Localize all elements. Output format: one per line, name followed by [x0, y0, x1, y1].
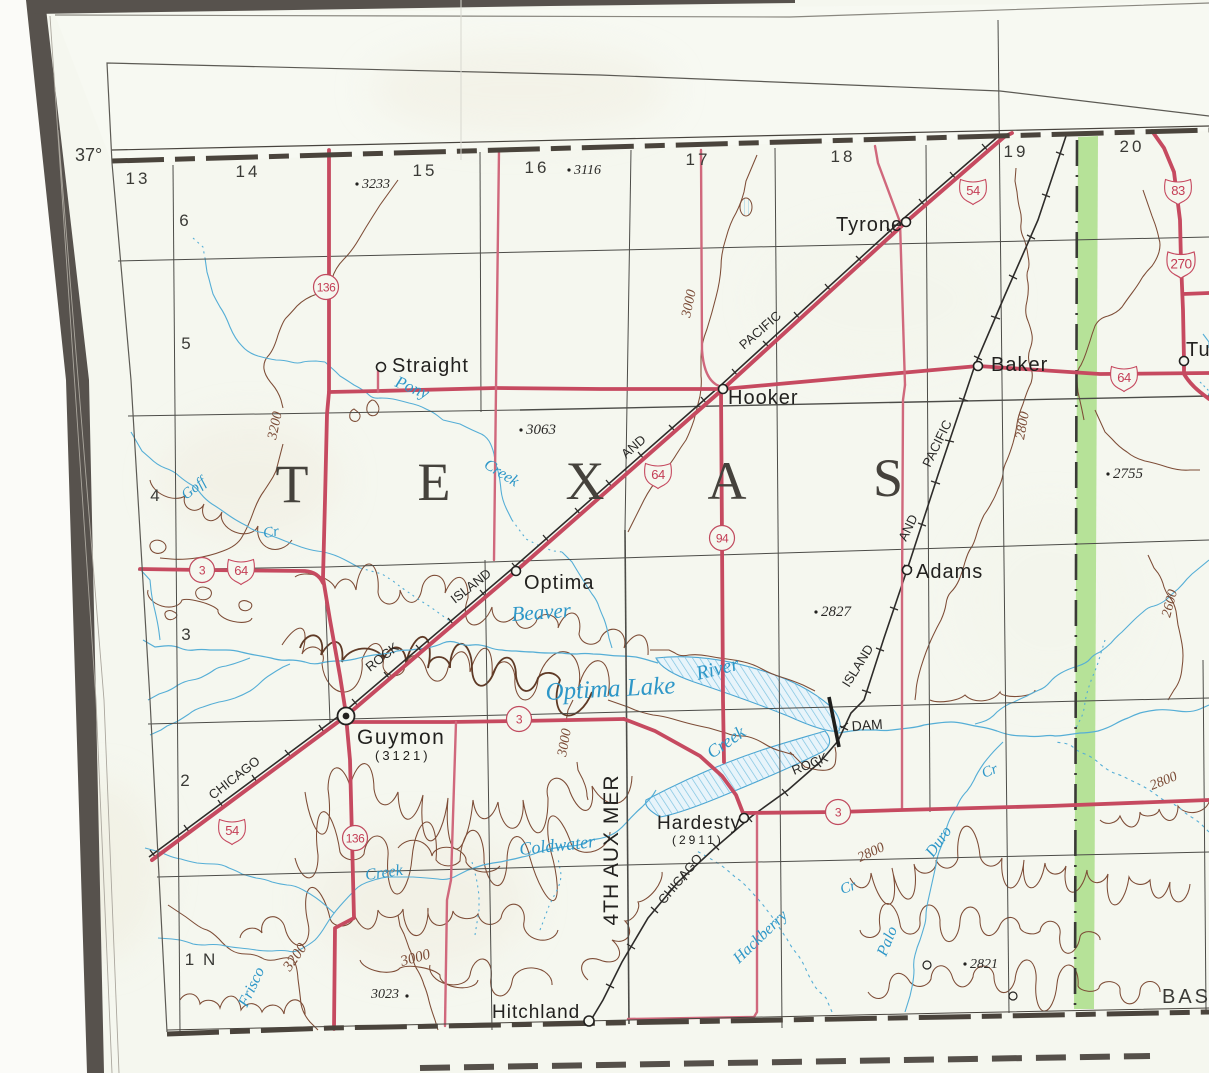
- svg-text:3: 3: [181, 625, 192, 644]
- svg-text:64: 64: [651, 467, 665, 482]
- svg-text:Hitchland: Hitchland: [492, 1002, 580, 1023]
- svg-text:BAS: BAS: [1162, 986, 1209, 1008]
- svg-text:54: 54: [966, 183, 980, 198]
- svg-text:37°: 37°: [75, 145, 102, 165]
- svg-text:T: T: [276, 454, 309, 514]
- svg-text:3: 3: [516, 713, 523, 727]
- svg-text:A: A: [708, 451, 747, 511]
- svg-text:19: 19: [1004, 142, 1029, 161]
- svg-text:18: 18: [831, 147, 856, 166]
- svg-text:15: 15: [413, 161, 438, 180]
- svg-text:Hooker: Hooker: [728, 387, 798, 409]
- svg-text:3: 3: [835, 806, 842, 820]
- svg-text:136: 136: [346, 832, 365, 846]
- svg-text:94: 94: [716, 532, 729, 546]
- svg-text:5: 5: [181, 334, 192, 353]
- svg-text:2821: 2821: [970, 957, 998, 972]
- svg-text:Guymon: Guymon: [357, 726, 445, 749]
- svg-text:S: S: [873, 448, 903, 508]
- svg-text:Baker: Baker: [991, 354, 1048, 376]
- svg-text:83: 83: [1171, 183, 1185, 198]
- svg-text:Cr: Cr: [262, 523, 281, 542]
- svg-text:4TH AUX MER: 4TH AUX MER: [600, 774, 623, 925]
- svg-text:3: 3: [199, 564, 206, 578]
- svg-text:13: 13: [126, 169, 151, 188]
- svg-text:3023: 3023: [370, 987, 399, 1002]
- svg-text:3233: 3233: [361, 177, 390, 192]
- svg-text:64: 64: [1117, 370, 1131, 385]
- svg-text:DAM: DAM: [851, 716, 883, 734]
- svg-text:2: 2: [180, 771, 191, 790]
- svg-text:136: 136: [317, 281, 336, 295]
- svg-text:(3121): (3121): [375, 748, 431, 763]
- svg-text:Optima: Optima: [524, 572, 594, 594]
- svg-text:14: 14: [236, 162, 261, 181]
- svg-text:4: 4: [150, 486, 161, 505]
- svg-text:1 N: 1 N: [185, 950, 217, 969]
- svg-text:54: 54: [225, 823, 239, 838]
- svg-text:2827: 2827: [821, 604, 853, 620]
- svg-text:Adams: Adams: [916, 561, 983, 583]
- svg-text:3063: 3063: [525, 422, 556, 438]
- svg-text:Tur: Tur: [1186, 339, 1209, 361]
- svg-text:3116: 3116: [573, 163, 601, 178]
- svg-text:E: E: [418, 452, 451, 512]
- svg-text:270: 270: [1170, 256, 1192, 271]
- svg-text:Tyrone: Tyrone: [836, 214, 903, 236]
- svg-text:17: 17: [686, 150, 711, 169]
- svg-text:(2911): (2911): [672, 833, 724, 847]
- svg-text:2755: 2755: [1113, 466, 1144, 482]
- svg-text:16: 16: [525, 158, 550, 177]
- svg-text:Hardesty: Hardesty: [657, 813, 741, 834]
- svg-text:Beaver: Beaver: [511, 598, 573, 626]
- svg-text:64: 64: [234, 563, 248, 578]
- svg-text:6: 6: [179, 211, 190, 230]
- svg-text:X: X: [566, 451, 605, 511]
- svg-text:20: 20: [1120, 137, 1145, 156]
